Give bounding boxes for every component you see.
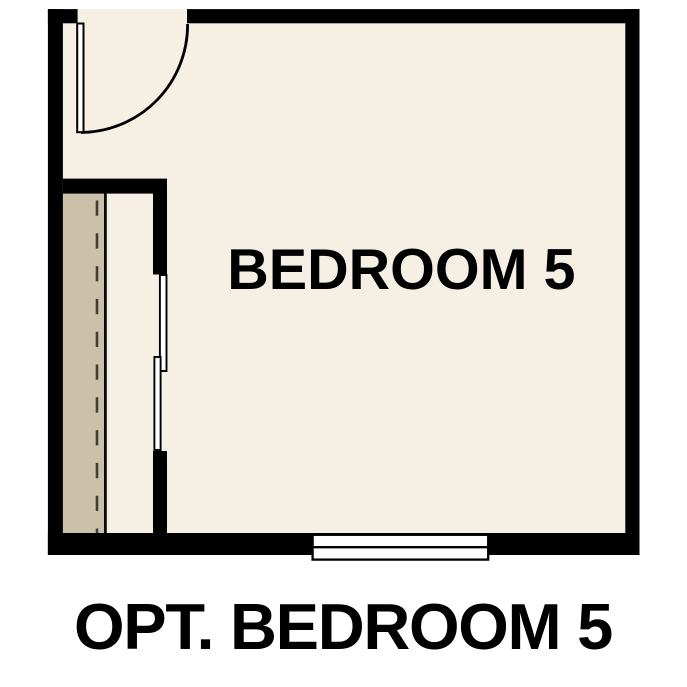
svg-text:OPT. BEDROOM 5: OPT. BEDROOM 5 [74,590,612,663]
svg-text:BEDROOM 5: BEDROOM 5 [227,238,575,302]
